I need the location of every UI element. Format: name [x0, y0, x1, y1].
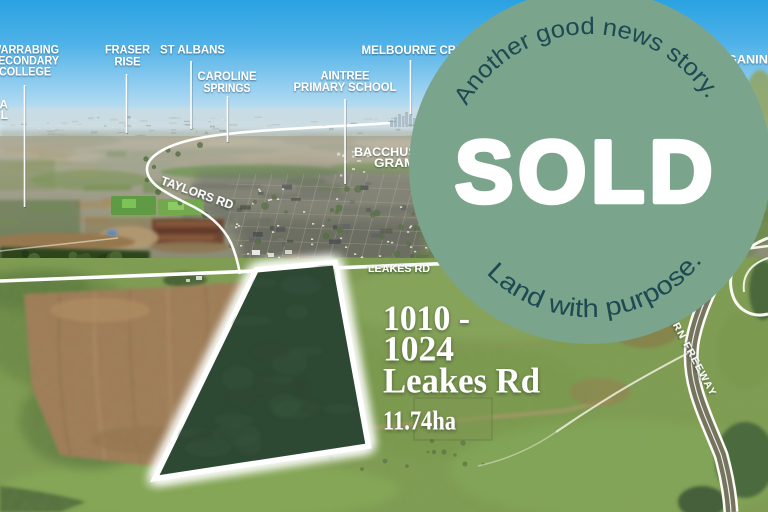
svg-text:SPRINGS: SPRINGS: [204, 81, 251, 95]
svg-text:L: L: [1, 108, 8, 122]
svg-text:RISE: RISE: [115, 55, 141, 69]
svg-text:SOLD: SOLD: [455, 122, 717, 221]
svg-text:ST ALBANS: ST ALBANS: [160, 43, 225, 57]
svg-text:11.74ha: 11.74ha: [383, 406, 456, 436]
svg-text:LEAKES RD: LEAKES RD: [368, 263, 430, 275]
svg-text:COLLEGE: COLLEGE: [0, 65, 51, 79]
svg-text:PRIMARY SCHOOL: PRIMARY SCHOOL: [294, 80, 397, 94]
svg-text:Leakes Rd: Leakes Rd: [383, 361, 540, 401]
